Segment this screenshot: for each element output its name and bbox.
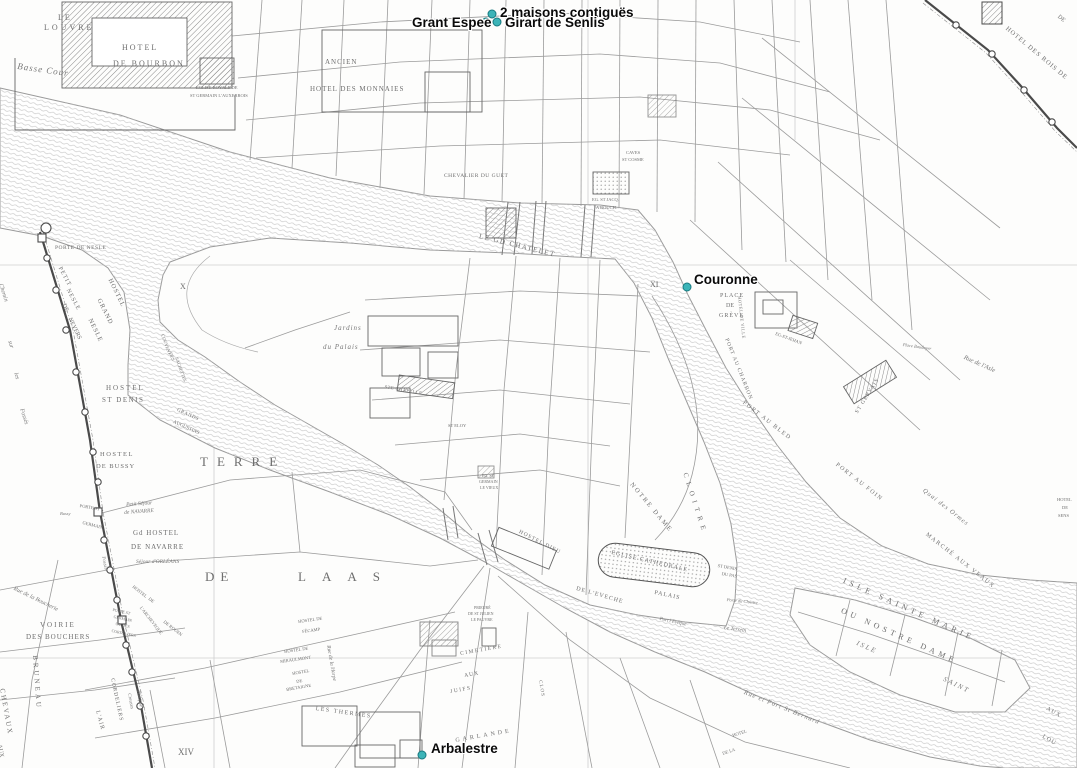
map-viewport: LELOUVREBasse CourHOTELDE BOURBONEGLISE …: [0, 0, 1077, 768]
poi-marker-label[interactable]: Grant Espee: [412, 15, 492, 30]
poi-marker-dot[interactable]: [683, 283, 692, 292]
poi-marker-dot[interactable]: [493, 18, 502, 27]
poi-marker-dot[interactable]: [418, 751, 427, 760]
poi-marker-label[interactable]: Girart de Senlis: [505, 15, 605, 30]
map-engraving: [0, 0, 1077, 768]
seine-river: [0, 88, 1077, 768]
poi-marker-label[interactable]: Couronne: [694, 272, 758, 287]
poi-marker-label[interactable]: Arbalestre: [431, 741, 498, 756]
